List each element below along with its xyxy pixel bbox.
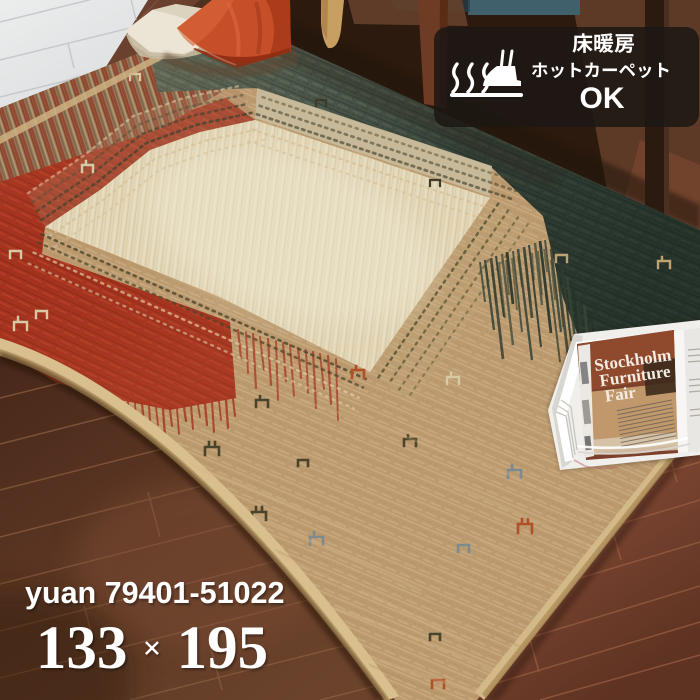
svg-text:yuan 79401-51022: yuan 79401-51022 [25,576,284,610]
svg-text:OK: OK [580,82,625,115]
